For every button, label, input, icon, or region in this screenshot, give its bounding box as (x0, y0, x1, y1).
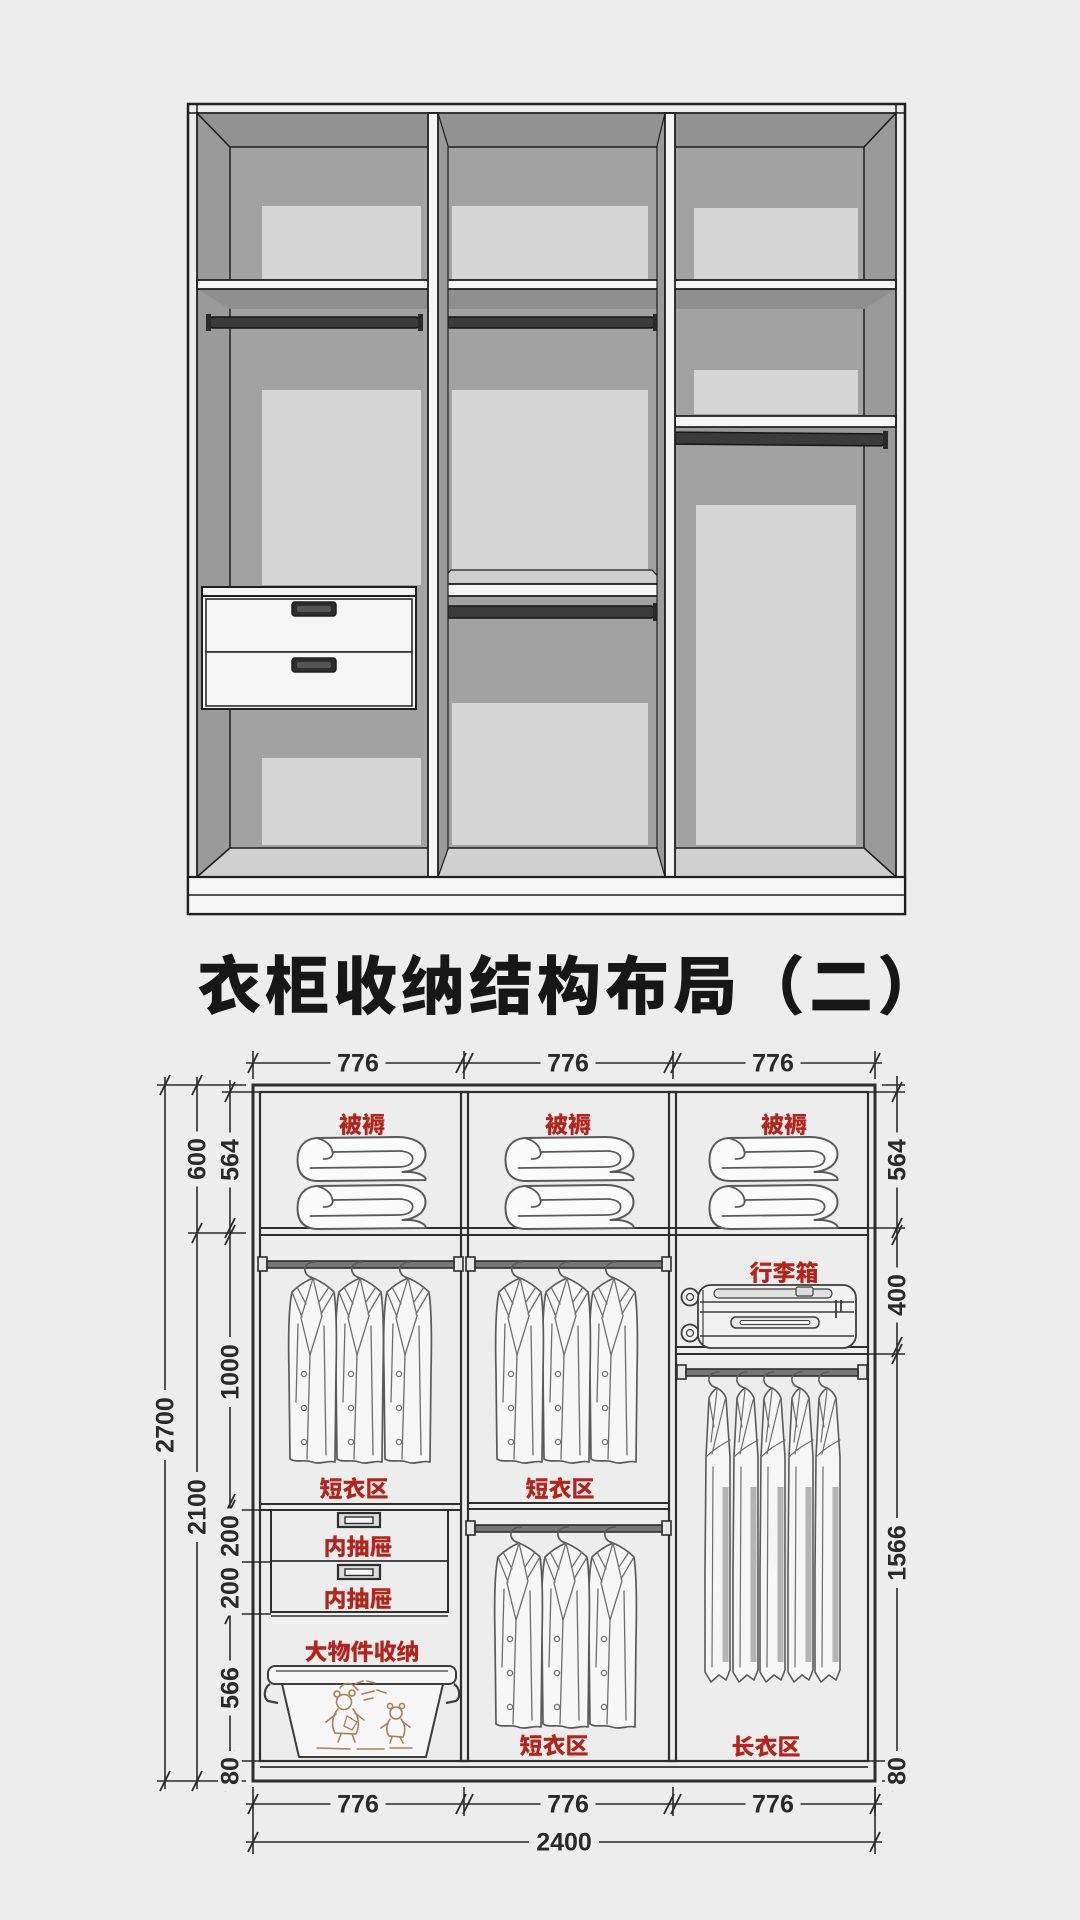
svg-text:2400: 2400 (536, 1829, 592, 1857)
svg-text:2100: 2100 (184, 1479, 212, 1535)
svg-text:200: 200 (217, 1567, 245, 1609)
svg-text:400: 400 (884, 1274, 912, 1316)
svg-text:80: 80 (217, 1757, 245, 1785)
svg-text:2700: 2700 (152, 1397, 180, 1453)
svg-text:776: 776 (337, 1791, 379, 1819)
svg-text:80: 80 (884, 1757, 912, 1785)
svg-text:566: 566 (217, 1667, 245, 1709)
svg-text:200: 200 (217, 1515, 245, 1557)
svg-text:1000: 1000 (217, 1344, 245, 1400)
svg-text:776: 776 (752, 1791, 794, 1819)
svg-text:564: 564 (217, 1139, 245, 1181)
svg-text:776: 776 (547, 1050, 589, 1078)
svg-text:1566: 1566 (884, 1525, 912, 1581)
svg-text:776: 776 (547, 1791, 589, 1819)
svg-text:600: 600 (184, 1138, 212, 1180)
svg-text:776: 776 (752, 1050, 794, 1078)
svg-text:776: 776 (337, 1050, 379, 1078)
svg-text:564: 564 (884, 1139, 912, 1181)
